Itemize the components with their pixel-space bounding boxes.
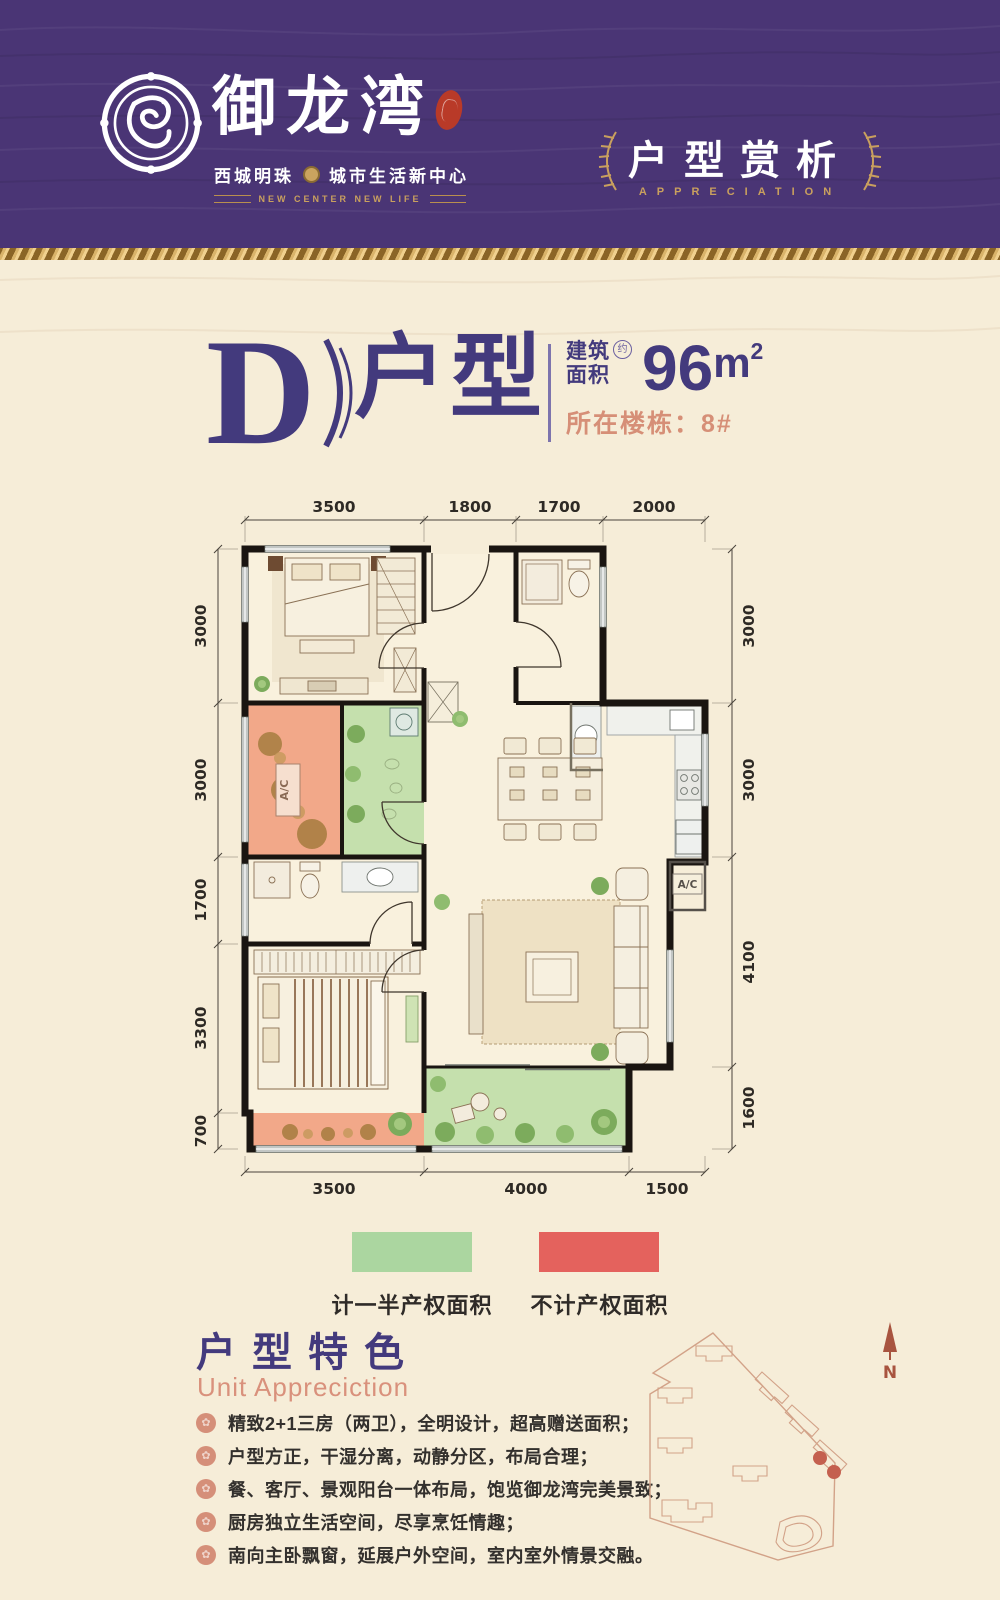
dim-label: 1700: [192, 878, 210, 921]
area-label-line2: 面积: [566, 364, 610, 388]
brand-tagline: 西城明珠 城市生活新中心: [214, 162, 469, 187]
feature-item: ✿ 餐、客厅、景观阳台一体布局，饱览御龙湾完美景致；: [196, 1478, 626, 1500]
legend-swatch-half: [352, 1232, 472, 1272]
dim-label: 3500: [312, 1180, 355, 1198]
dim-label: 3000: [192, 758, 210, 801]
features-list: ✿ 精致2+1三房（两卫），全明设计，超高赠送面积； ✿ 户型方正，干湿分离，动…: [196, 1412, 626, 1577]
section-subtitle: APPRECIATION: [600, 186, 880, 198]
dim-label: 3000: [740, 758, 758, 801]
site-buildings: [658, 1346, 847, 1552]
gold-rope-divider: [0, 248, 1000, 260]
seal-bullet-icon: ✿: [196, 1413, 216, 1433]
poster-page: { "header": { "logo_name": "御龙湾", "tagli…: [0, 0, 1000, 1600]
tagline-en-text: NEW CENTER NEW LIFE: [259, 194, 422, 204]
north-arrow-icon: N: [883, 1322, 897, 1383]
brand-name: 御龙湾: [212, 76, 434, 140]
feature-item: ✿ 精致2+1三房（两卫），全明设计，超高赠送面积；: [196, 1412, 626, 1434]
seal-bullet-icon: ✿: [196, 1512, 216, 1532]
legend-swatch-none: [539, 1232, 659, 1272]
north-label: N: [883, 1363, 897, 1383]
floorplan-drawing: 3500 1800 1700 2000 3500 4000 1500 3000 …: [170, 472, 810, 1208]
dim-label: 3000: [192, 604, 210, 647]
tagline-left: 西城明珠: [214, 162, 294, 187]
tagline-right: 城市生活新中心: [329, 162, 469, 187]
feature-text: 户型方正，干湿分离，动静分区，布局合理；: [228, 1443, 598, 1469]
dim-label: 2000: [632, 498, 675, 516]
dim-label: 1600: [740, 1086, 758, 1129]
unit-letter-echo-icon: [320, 334, 356, 452]
ac-label: A/C: [278, 780, 291, 801]
area-unit: m: [713, 340, 750, 386]
features-subtitle: Unit Appreciction: [197, 1372, 409, 1403]
dim-label: 3000: [740, 604, 758, 647]
feature-text: 南向主卧飘窗，延展户外空间，室内室外情景交融。: [228, 1542, 654, 1568]
area-value: 96: [642, 340, 713, 396]
unit-letter: D: [206, 316, 316, 468]
seal-bullet-icon: ✿: [196, 1446, 216, 1466]
feature-item: ✿ 厨房独立生活空间，尽享烹饪情趣；: [196, 1511, 626, 1533]
area-label: 建筑 面积: [566, 340, 610, 388]
tagline-line-left: [214, 195, 251, 203]
dim-label: 4000: [504, 1180, 547, 1198]
legend-label-half: 计一半产权面积: [317, 1288, 507, 1320]
feature-item: ✿ 南向主卧飘窗，延展户外空间，室内室外情景交融。: [196, 1544, 626, 1566]
dim-label: 700: [192, 1115, 210, 1148]
brand-tagline-en: NEW CENTER NEW LIFE: [214, 194, 466, 204]
area-superscript: 2: [751, 340, 764, 363]
header-banner: 御龙湾 西城明珠 城市生活新中心 NEW CENTER NEW LIFE 户型赏…: [0, 0, 1000, 248]
dim-label: 1700: [537, 498, 580, 516]
seal-bullet-icon: ✿: [196, 1545, 216, 1565]
feature-text: 精致2+1三房（两卫），全明设计，超高赠送面积；: [228, 1410, 640, 1436]
feature-text: 餐、客厅、景观阳台一体布局，饱览御龙湾完美景致；: [228, 1476, 672, 1502]
building-number: 所在楼栋：8#: [566, 404, 733, 440]
site-boundary: [650, 1333, 835, 1560]
dim-label: 1800: [448, 498, 491, 516]
seal-bullet-icon: ✿: [196, 1479, 216, 1499]
tagline-line-right: [430, 195, 467, 203]
tagline-dot-icon: [303, 166, 320, 183]
unit-suffix: 户型: [354, 332, 546, 424]
approx-badge: 约: [613, 340, 632, 359]
dim-label: 1500: [645, 1180, 688, 1198]
dim-label: 3500: [312, 498, 355, 516]
dragon-emblem-icon: [98, 70, 204, 176]
entry-gap: [431, 544, 489, 554]
siteplan-map: N: [628, 1308, 978, 1588]
section-title: 户型赏析: [600, 128, 880, 186]
feature-item: ✿ 户型方正，干湿分离，动静分区，布局合理；: [196, 1445, 626, 1467]
highlight-building-dot: [827, 1465, 841, 1479]
title-divider: [548, 344, 551, 442]
highlight-building-dot: [813, 1451, 827, 1465]
area-label-line1: 建筑: [566, 340, 610, 364]
area-block: 建筑 面积 约 96 m 2: [566, 340, 763, 396]
features-title: 户型特色: [196, 1320, 420, 1378]
feature-text: 厨房独立生活空间，尽享烹饪情趣；: [228, 1509, 524, 1535]
dim-label: 4100: [740, 940, 758, 983]
ac-label: A/C: [678, 879, 698, 891]
dim-label: 3300: [192, 1006, 210, 1049]
